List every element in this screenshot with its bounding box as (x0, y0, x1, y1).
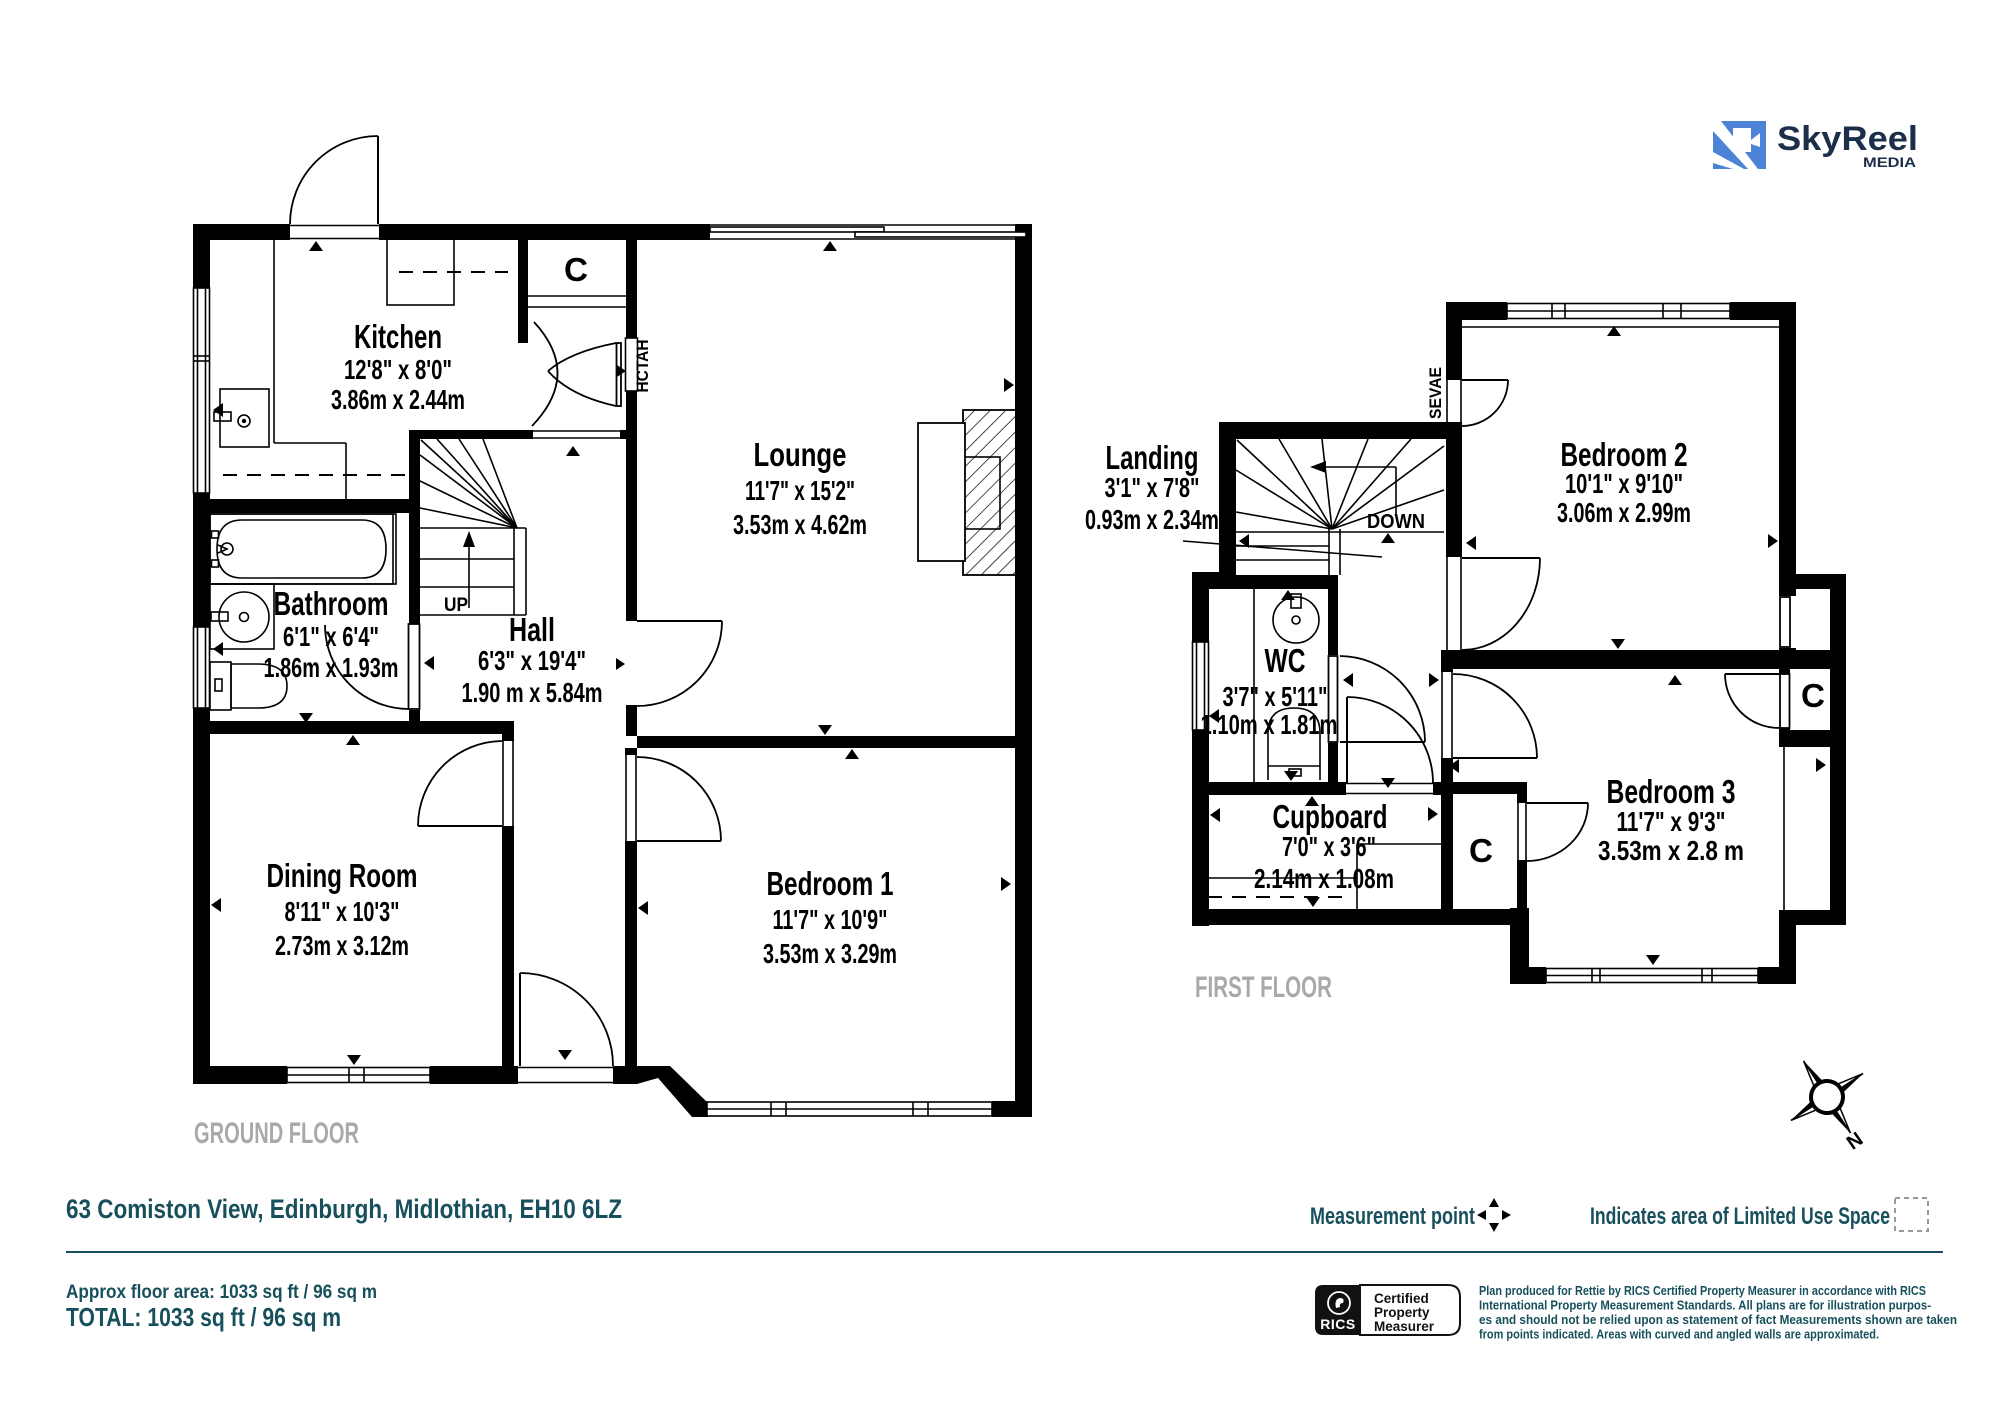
svg-text:3'7" x 5'11": 3'7" x 5'11" (1223, 681, 1328, 712)
svg-text:WC: WC (1265, 642, 1306, 679)
svg-text:C: C (564, 251, 588, 288)
svg-text:Indicates area of Limited Use: Indicates area of Limited Use Space (1590, 1203, 1890, 1230)
svg-text:Bedroom 3: Bedroom 3 (1607, 773, 1736, 810)
svg-text:Cupboard: Cupboard (1273, 798, 1388, 835)
svg-text:3.53m x 4.62m: 3.53m x 4.62m (733, 509, 867, 540)
svg-text:DOWN: DOWN (1367, 511, 1425, 533)
svg-text:SEVAE: SEVAE (1426, 367, 1445, 419)
svg-text:RICS: RICS (1320, 1316, 1355, 1332)
svg-text:3.53m x 3.29m: 3.53m x 3.29m (763, 938, 897, 969)
svg-text:63 Comiston View, Edinburgh, M: 63 Comiston View, Edinburgh, Midlothian,… (66, 1194, 622, 1224)
svg-text:10'1" x 9'10": 10'1" x 9'10" (1565, 468, 1683, 499)
svg-text:2.14m x 1.08m: 2.14m x 1.08m (1254, 863, 1394, 894)
svg-text:7'0" x 3'6": 7'0" x 3'6" (1282, 831, 1376, 862)
svg-text:International Property Measur: International Property Measurement Stand… (1479, 1299, 1931, 1313)
svg-text:Dining Room: Dining Room (267, 857, 418, 894)
svg-text:es and should not be relied up: es and should not be relied upon as stat… (1479, 1313, 1957, 1327)
svg-text:3.06m x 2.99m: 3.06m x 2.99m (1557, 497, 1691, 528)
svg-text:Approx floor area: 1033 sq ft: Approx floor area: 1033 sq ft / 96 sq m (66, 1281, 377, 1303)
svg-text:2.73m x 3.12m: 2.73m x 3.12m (275, 930, 409, 961)
svg-text:12'8" x 8'0": 12'8" x 8'0" (344, 354, 452, 385)
svg-text:6'3" x 19'4": 6'3" x 19'4" (478, 645, 586, 676)
svg-text:HCTAH: HCTAH (633, 340, 652, 393)
svg-text:11'7" x 15'2": 11'7" x 15'2" (745, 475, 855, 506)
svg-text:Kitchen: Kitchen (354, 318, 442, 355)
svg-text:11'7" x 10'9": 11'7" x 10'9" (773, 904, 888, 935)
svg-text:GROUND FLOOR: GROUND FLOOR (194, 1117, 359, 1150)
svg-text:Measurer: Measurer (1374, 1319, 1435, 1334)
svg-text:Certified: Certified (1374, 1291, 1429, 1306)
svg-text:3'1" x 7'8": 3'1" x 7'8" (1105, 472, 1200, 503)
svg-text:Plan produced for Rettie by RI: Plan produced for Rettie by RICS Certifi… (1479, 1284, 1926, 1298)
svg-text:FIRST FLOOR: FIRST FLOOR (1195, 971, 1332, 1004)
svg-text:Hall: Hall (509, 611, 555, 648)
svg-text:Landing: Landing (1106, 439, 1199, 476)
svg-text:6'1" x 6'4": 6'1" x 6'4" (283, 621, 379, 652)
svg-text:3.86m x 2.44m: 3.86m x 2.44m (331, 384, 465, 415)
svg-text:Bedroom 1: Bedroom 1 (767, 865, 894, 902)
svg-text:1.10m x 1.81m: 1.10m x 1.81m (1201, 709, 1338, 740)
svg-text:Property: Property (1374, 1305, 1430, 1320)
svg-text:Bathroom: Bathroom (274, 585, 389, 622)
svg-text:TOTAL: 1033 sq ft / 96 sq m: TOTAL: 1033 sq ft / 96 sq m (66, 1302, 341, 1332)
svg-text:8'11" x 10'3": 8'11" x 10'3" (285, 896, 400, 927)
svg-text:Measurement point: Measurement point (1310, 1203, 1475, 1230)
svg-text:UP: UP (444, 595, 468, 616)
svg-text:C: C (1469, 832, 1493, 869)
svg-text:0.93m x 2.34m: 0.93m x 2.34m (1085, 504, 1219, 535)
svg-text:3.53m x 2.8 m: 3.53m x 2.8 m (1598, 835, 1744, 866)
svg-text:C: C (1801, 677, 1825, 714)
svg-text:11'7" x 9'3": 11'7" x 9'3" (1617, 806, 1726, 837)
svg-text:1.90 m x 5.84m: 1.90 m x 5.84m (462, 677, 603, 708)
svg-text:from points indicated. Areas w: from points indicated. Areas with curved… (1479, 1328, 1879, 1342)
svg-text:1.86m x 1.93m: 1.86m x 1.93m (264, 652, 399, 683)
svg-text:Lounge: Lounge (754, 436, 847, 473)
svg-text:MEDIA: MEDIA (1863, 154, 1916, 170)
svg-text:SkyReel: SkyReel (1777, 120, 1918, 158)
